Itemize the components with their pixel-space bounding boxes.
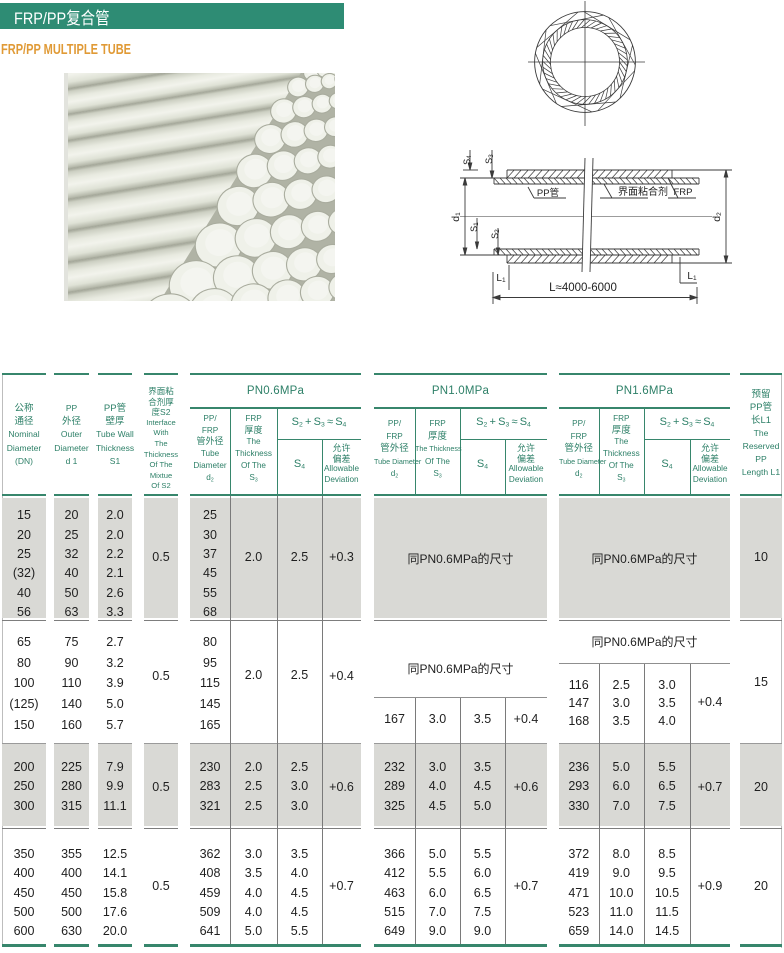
svg-text:S2: S2 [490,229,501,239]
svg-text:S3: S3 [484,154,495,164]
svg-text:界面粘合剂: 界面粘合剂 [618,185,668,198]
svg-text:PP管: PP管 [537,187,559,199]
svg-text:d2: d2 [711,212,723,222]
svg-text:L1: L1 [687,271,697,282]
svg-text:d1: d1 [450,212,462,222]
svg-text:S1: S1 [469,222,480,232]
svg-text:S4: S4 [462,155,473,165]
svg-text:L1: L1 [496,273,506,284]
svg-text:L≈4000-6000: L≈4000-6000 [549,282,617,294]
svg-text:FRP: FRP [674,187,693,198]
